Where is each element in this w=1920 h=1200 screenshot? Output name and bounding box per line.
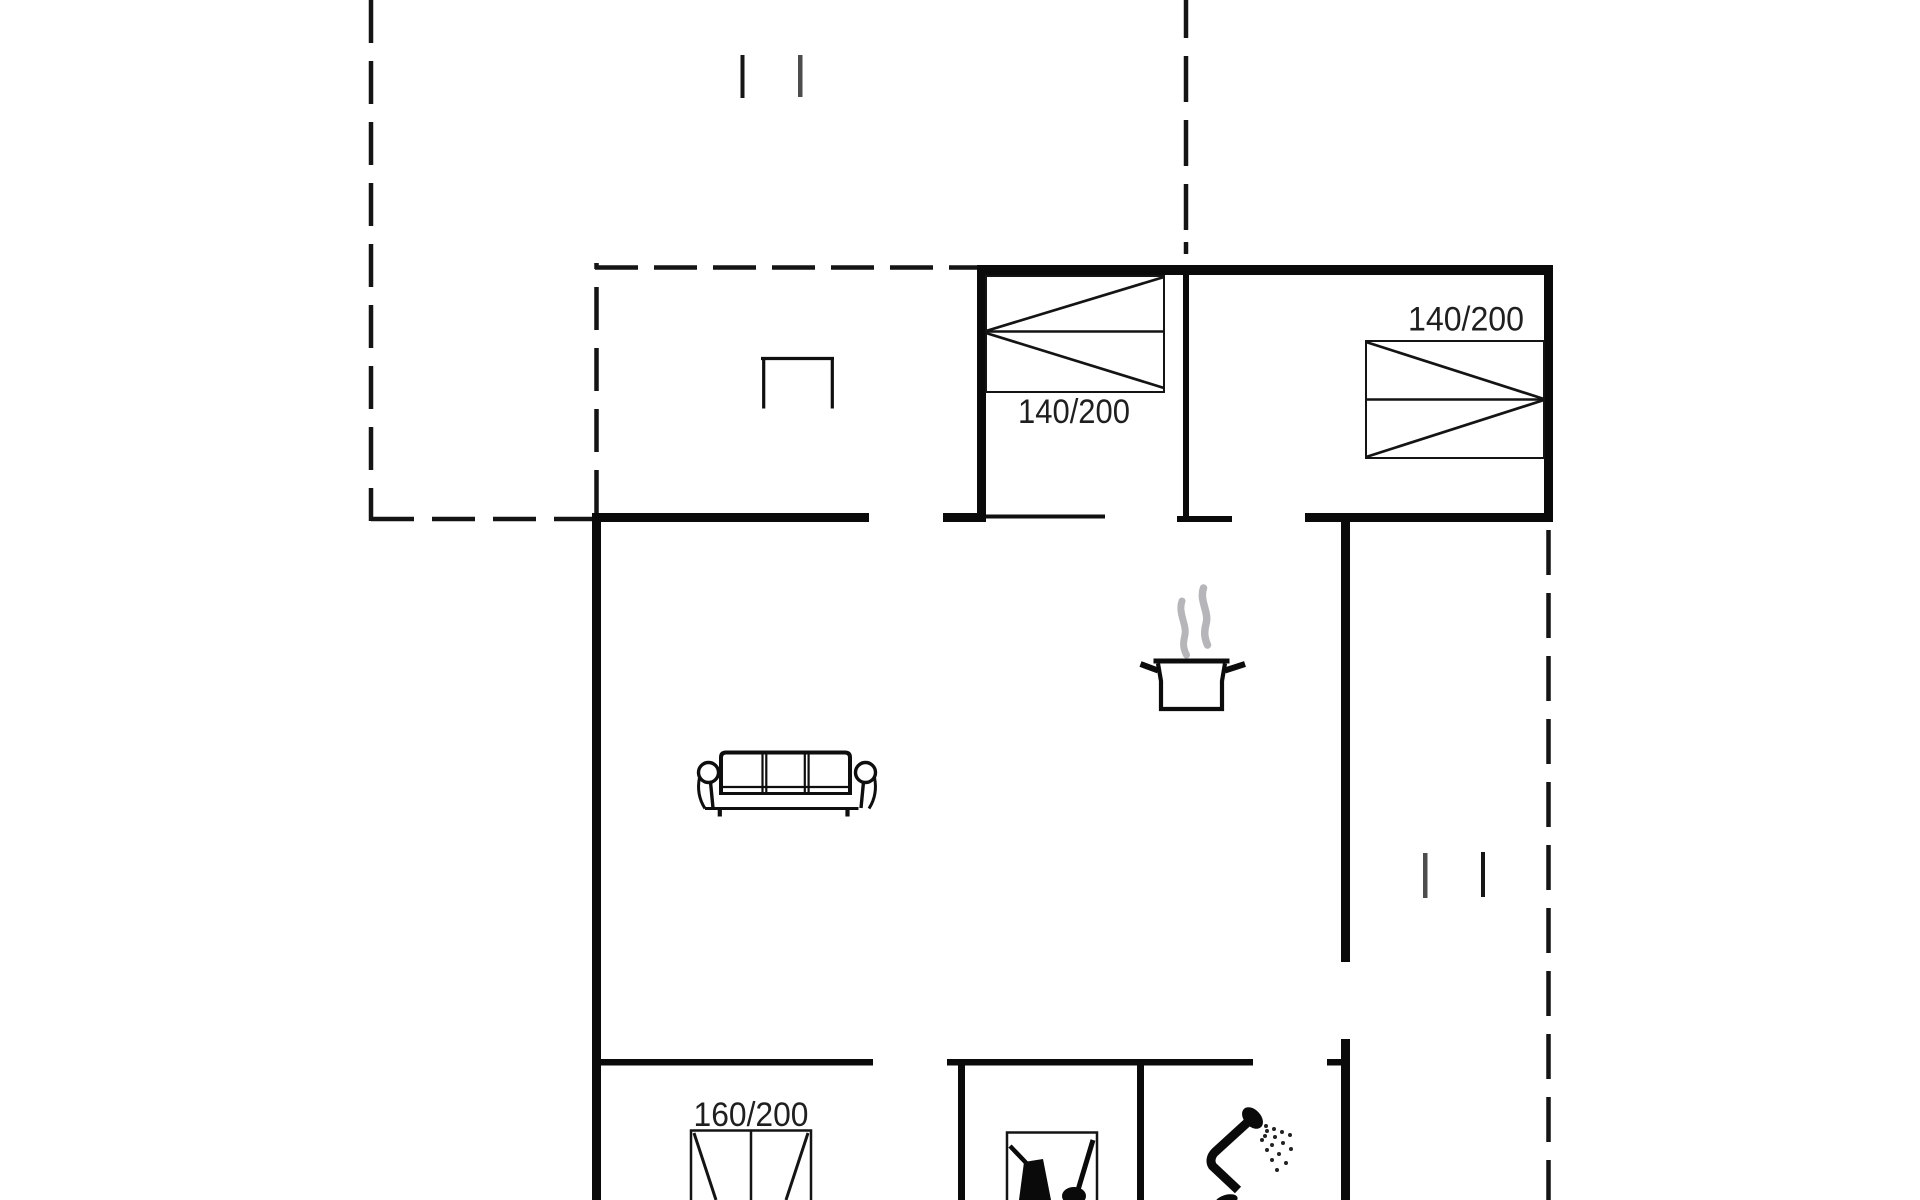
svg-text:140/200: 140/200: [1408, 301, 1524, 339]
svg-text:140/200: 140/200: [1018, 393, 1130, 431]
svg-text:160/200: 160/200: [694, 1096, 809, 1134]
